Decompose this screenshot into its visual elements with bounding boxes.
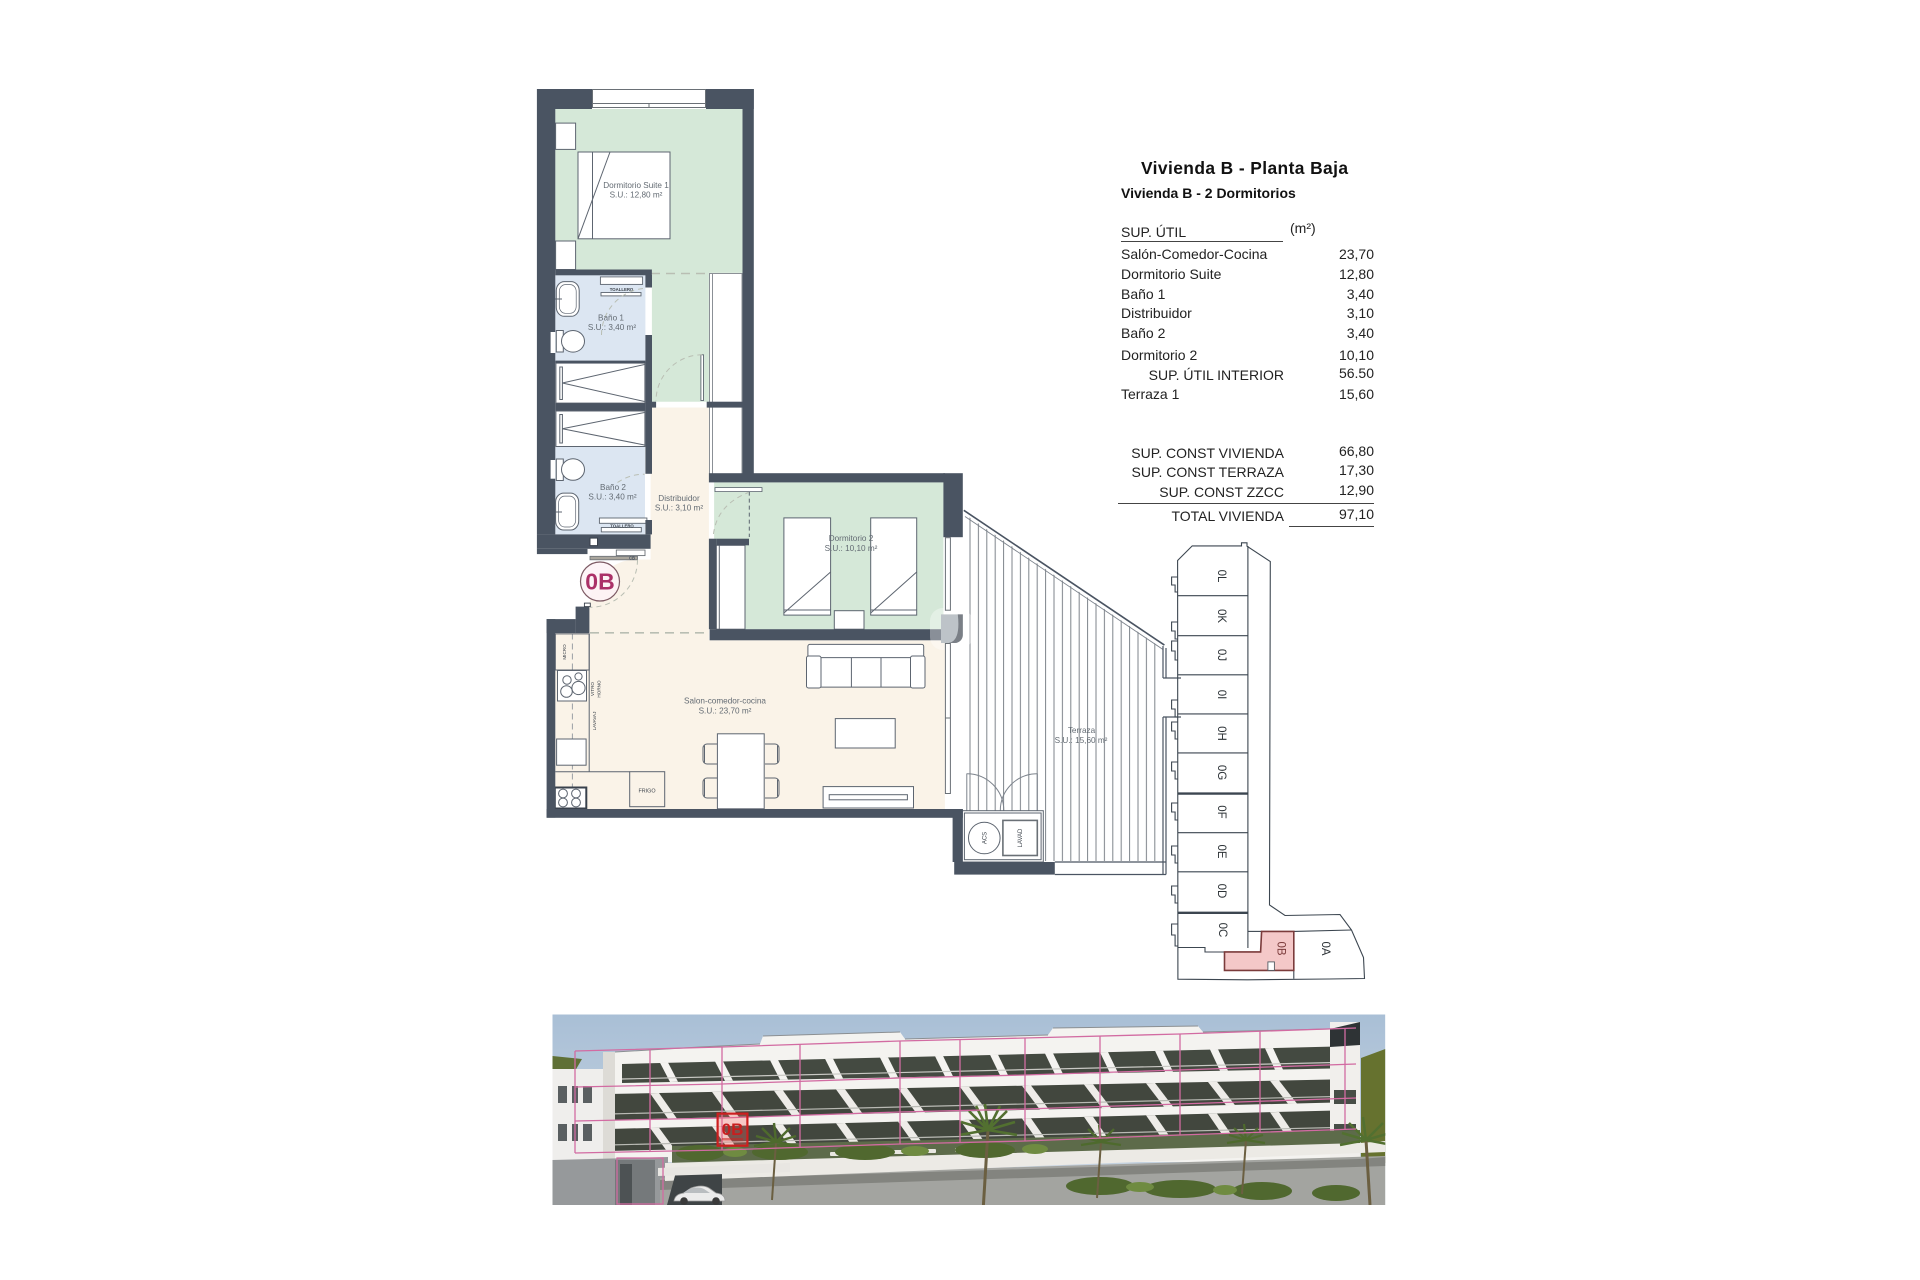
svg-text:MICRO: MICRO bbox=[562, 644, 567, 660]
svg-text:0F: 0F bbox=[1215, 805, 1227, 818]
svg-text:TOALLERO: TOALLERO bbox=[610, 523, 634, 528]
svg-text:ACS: ACS bbox=[982, 832, 988, 844]
svg-text:0A: 0A bbox=[1319, 941, 1331, 955]
svg-text:TOALLERO: TOALLERO bbox=[610, 287, 634, 292]
svg-text:0B: 0B bbox=[585, 569, 614, 595]
svg-text:0E: 0E bbox=[1215, 844, 1227, 858]
svg-text:FRIGO: FRIGO bbox=[638, 789, 655, 795]
svg-text:S.U.: 10,10 m²: S.U.: 10,10 m² bbox=[825, 544, 878, 553]
svg-text:LAVAVAJ: LAVAVAJ bbox=[592, 712, 597, 731]
svg-text:LAVAD: LAVAD bbox=[1018, 828, 1024, 847]
svg-text:0B: 0B bbox=[1275, 941, 1287, 955]
svg-text:CB: CB bbox=[629, 556, 635, 561]
svg-text:Terraza: Terraza bbox=[1068, 726, 1096, 735]
svg-text:S.U.: 3,40 m²: S.U.: 3,40 m² bbox=[588, 493, 637, 502]
svg-text:0G: 0G bbox=[1215, 765, 1227, 780]
svg-text:Dormitorio Suite 1: Dormitorio Suite 1 bbox=[603, 181, 669, 190]
svg-text:VITRO: VITRO bbox=[590, 682, 595, 696]
svg-text:Dormitorio 2: Dormitorio 2 bbox=[829, 534, 874, 543]
svg-text:0K: 0K bbox=[1215, 609, 1227, 623]
svg-text:0B: 0B bbox=[722, 1120, 744, 1139]
svg-text:0C: 0C bbox=[1216, 923, 1228, 938]
svg-text:0L: 0L bbox=[1215, 570, 1227, 583]
svg-text:S.U.: 3,10 m²: S.U.: 3,10 m² bbox=[655, 504, 704, 513]
svg-text:0I: 0I bbox=[1215, 690, 1227, 700]
svg-text:Distribuidor: Distribuidor bbox=[658, 494, 700, 503]
svg-text:S.U.: 23,70 m²: S.U.: 23,70 m² bbox=[699, 707, 752, 716]
svg-text:Baño 2: Baño 2 bbox=[600, 483, 626, 492]
svg-text:S.U.: 12,80 m²: S.U.: 12,80 m² bbox=[610, 191, 663, 200]
svg-text:S.U.: 3,40 m²: S.U.: 3,40 m² bbox=[588, 323, 637, 332]
svg-text:S.U.: 15,60 m²: S.U.: 15,60 m² bbox=[1055, 736, 1108, 745]
svg-text:Baño 1: Baño 1 bbox=[598, 314, 624, 323]
svg-text:0D: 0D bbox=[1215, 884, 1227, 899]
svg-text:0J: 0J bbox=[1215, 649, 1227, 661]
svg-text:0H: 0H bbox=[1215, 726, 1227, 741]
svg-text:HORNO: HORNO bbox=[597, 680, 602, 698]
svg-text:Salon-comedor-cocina: Salon-comedor-cocina bbox=[684, 697, 766, 706]
